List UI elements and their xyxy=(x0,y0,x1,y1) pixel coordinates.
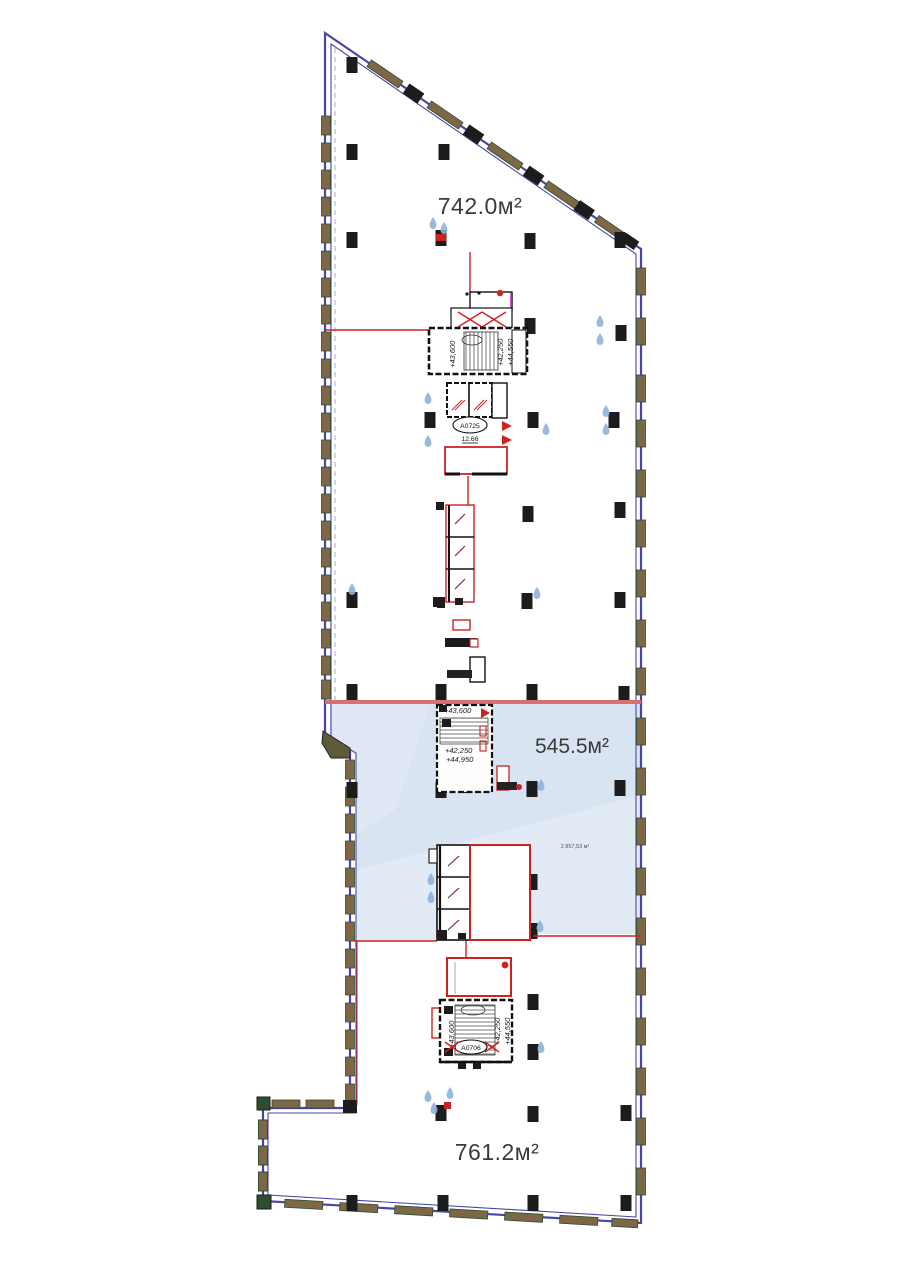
floor-plan-canvas: +43,600 +42,250 +44,550 А0725 12.66 xyxy=(0,0,905,1280)
room-tag-area: 12.66 xyxy=(461,436,478,443)
tech-room-top xyxy=(445,447,507,474)
elevation-bottom-c: +44,550 xyxy=(503,1017,512,1045)
fire-point-icon-mid xyxy=(516,784,522,790)
elevator-bank-lower xyxy=(429,845,530,940)
corner-block-step xyxy=(257,1097,270,1110)
zone-middle-area-label: 545.5м² xyxy=(535,735,609,758)
fire-arrow-icon xyxy=(502,421,512,431)
elevation-mid-c: +44,950 xyxy=(446,755,474,764)
stair-core-top: +43,600 +42,250 +44,550 А0725 12.66 xyxy=(429,290,527,474)
windows-diagonal-wall xyxy=(367,60,639,250)
elevation-mid-b: +42,250 xyxy=(445,746,473,755)
corner-block-step-right xyxy=(343,1100,357,1113)
fire-cabinet xyxy=(453,620,470,630)
corner-block-bottom-left xyxy=(257,1195,271,1209)
shaft-room-lower xyxy=(470,845,530,940)
zone-bottom-area-label: 761.2м² xyxy=(455,1139,540,1165)
shaft-elements-mid xyxy=(445,620,485,682)
elevation-top-c: +44,550 xyxy=(506,338,515,366)
vestibule-top xyxy=(470,292,512,310)
elevation-top-a: +43,600 xyxy=(448,340,457,368)
elevation-top-b: +42,250 xyxy=(496,338,505,366)
riser-bar xyxy=(447,670,472,678)
elevator-bank-top xyxy=(447,383,512,445)
zone-middle-small-note: 2 857,53 м² xyxy=(561,844,590,850)
stair-core-bottom: +43,600 +42,250 +44,550 А0706 xyxy=(432,958,512,1069)
tech-room-bottom xyxy=(447,958,511,996)
elevation-mid-a: +43,600 xyxy=(444,706,472,715)
fire-arrow-icon-2 xyxy=(502,435,512,445)
floor-plan-page: +43,600 +42,250 +44,550 А0725 12.66 xyxy=(0,0,905,1280)
room-tag-code-bottom: А0706 xyxy=(461,1045,481,1052)
elevation-bottom-b: +42,250 xyxy=(493,1017,502,1045)
elevator-shaft-mid xyxy=(433,505,474,607)
room-tag-code: А0725 xyxy=(460,423,480,430)
fire-marker-column-lower xyxy=(444,1102,451,1109)
fire-point-icon xyxy=(497,290,503,296)
fire-point-icon-bottom xyxy=(502,962,509,969)
fire-marker-column xyxy=(436,234,446,241)
zone-top-area-label: 742.0м² xyxy=(438,193,523,219)
riser-room xyxy=(470,657,485,682)
lobby-tag-top: А0725 12.66 xyxy=(453,417,487,443)
